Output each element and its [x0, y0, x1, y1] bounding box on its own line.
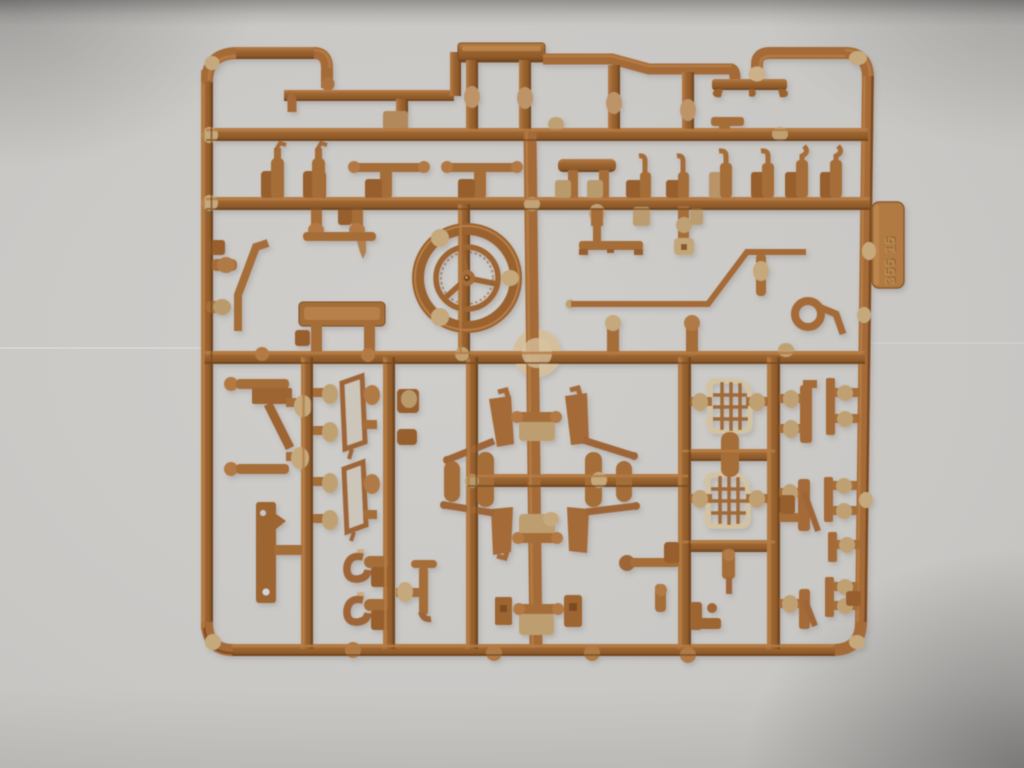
svg-text:355 15: 355 15 — [882, 236, 899, 285]
